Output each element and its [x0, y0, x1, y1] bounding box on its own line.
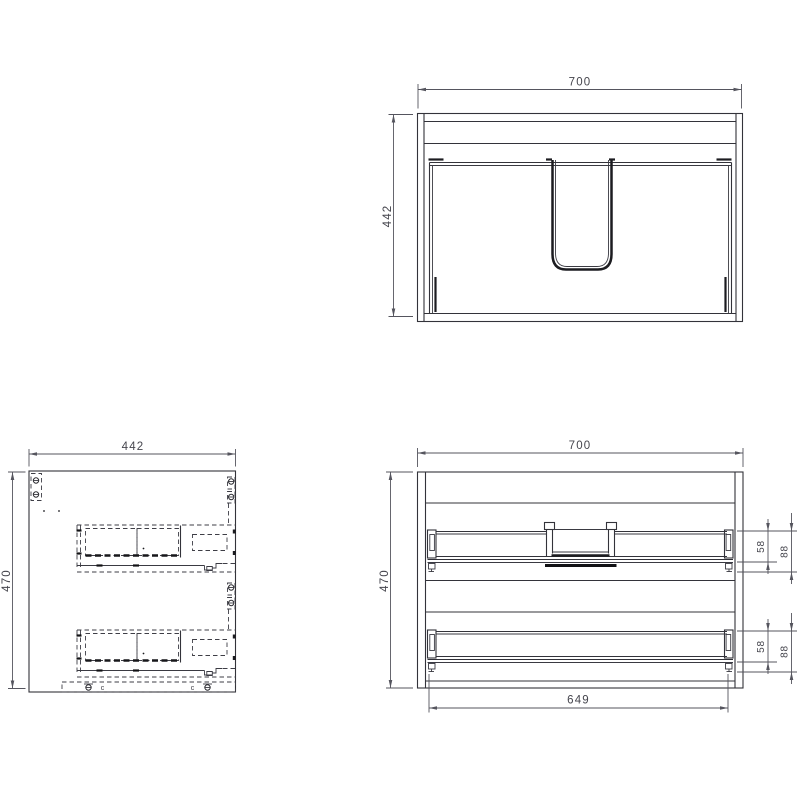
dim-label-lower-rail-88: 88 [780, 645, 791, 658]
dim-top-width: 700 [418, 77, 742, 109]
dim-label-front-inner-width: 649 [567, 695, 590, 707]
dim-label-lower-rail-58: 58 [756, 640, 767, 653]
drawer-box-top [429, 160, 732, 314]
dim-lower-rail: 58 88 [737, 613, 797, 684]
drill-dot [43, 510, 45, 512]
dim-label-front-width: 700 [569, 440, 592, 452]
front-view [418, 472, 744, 688]
dim-front-inner-width: 649 [429, 674, 728, 713]
dim-top-depth: 442 [382, 115, 413, 317]
cabinet-technical-drawing: 700 442 [0, 0, 800, 800]
dim-label-top-depth: 442 [382, 205, 394, 228]
dim-label-upper-rail-88: 88 [780, 545, 791, 558]
strip-mark-right: c [191, 685, 195, 692]
dim-upper-rail: 58 88 [737, 513, 797, 584]
dim-side-depth: 442 [29, 441, 236, 467]
strip-mark-left: c [101, 685, 105, 692]
technical-drawing-canvas: 700 442 [0, 0, 800, 800]
lower-rail [428, 630, 734, 672]
siphon-cutout-u [553, 160, 612, 270]
side-bracket-upper [228, 477, 236, 503]
lower-slide [77, 630, 236, 677]
dim-front-height: 470 [379, 472, 413, 688]
upper-rail [428, 523, 734, 573]
bottom-strip: c c [62, 682, 236, 692]
dim-label-side-height: 470 [1, 569, 13, 592]
side-view: c c [29, 471, 236, 692]
wall-bracket-left [31, 474, 42, 501]
dim-front-width: 700 [418, 440, 744, 467]
dim-side-height: 470 [1, 472, 26, 689]
top-view [418, 114, 743, 322]
dim-label-upper-rail-58: 58 [756, 540, 767, 553]
upper-slide [77, 525, 236, 572]
dim-label-front-height: 470 [379, 569, 391, 592]
drill-dot [58, 510, 60, 512]
side-bracket-lower [228, 583, 236, 609]
dim-label-side-depth: 442 [122, 441, 145, 453]
dim-label-top-width: 700 [569, 77, 592, 89]
